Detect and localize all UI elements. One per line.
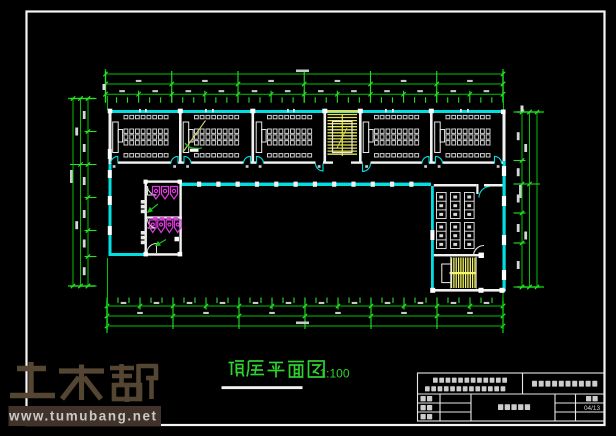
svg-text:04/13: 04/13 bbox=[584, 405, 600, 412]
svg-text:1:100: 1:100 bbox=[320, 367, 350, 381]
svg-text:www.tumubang.net: www.tumubang.net bbox=[8, 409, 158, 424]
